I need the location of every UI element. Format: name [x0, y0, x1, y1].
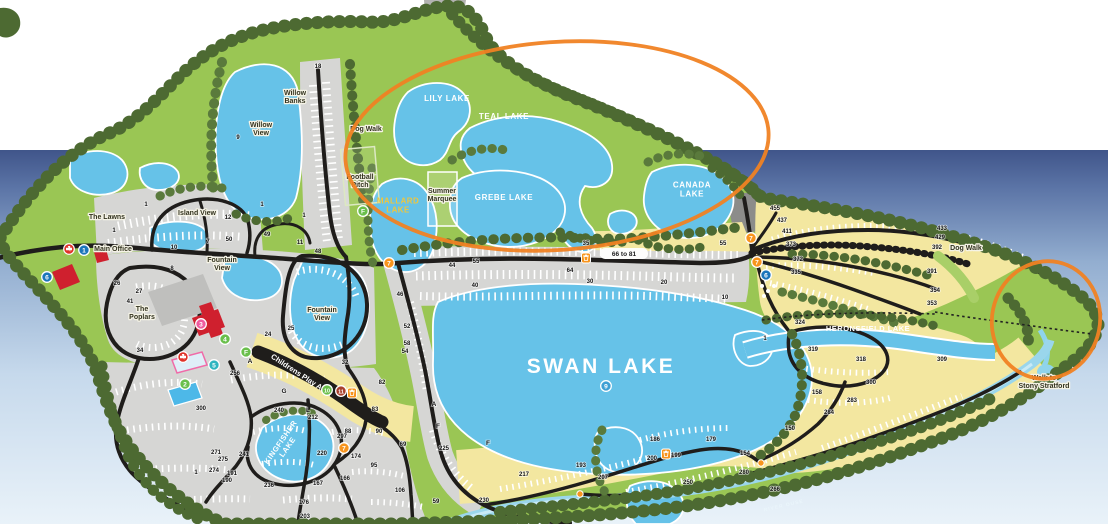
svg-text:7: 7	[749, 235, 753, 242]
site-number: 20	[661, 280, 668, 286]
svg-text:4: 4	[223, 336, 227, 343]
refuse-point-icon	[662, 449, 671, 459]
site-number: 280	[739, 470, 750, 476]
svg-text:6: 6	[764, 272, 768, 279]
row-letter: F	[436, 423, 440, 430]
site-number: 429	[935, 235, 946, 241]
marker-7-icon: 7	[746, 233, 757, 244]
marker-dot-icon	[758, 460, 764, 466]
site-number: 283	[847, 398, 858, 404]
site-number: 82	[379, 380, 386, 386]
site-number: 240	[274, 408, 285, 414]
site-number: 190	[222, 478, 233, 484]
marker-6-icon: 6	[42, 272, 53, 283]
site-number: 335	[791, 270, 802, 276]
site-number: 203	[300, 514, 311, 520]
site-number: 373	[786, 242, 797, 248]
map-label: GREBE LAKE	[475, 193, 534, 202]
site-number: 166	[340, 476, 351, 482]
row-letter: F	[486, 440, 490, 447]
svg-text:5: 5	[212, 362, 216, 369]
site-number: 32	[342, 360, 349, 366]
site-number: 10	[722, 295, 729, 301]
site-number: 230	[479, 498, 490, 504]
site-number: 191	[227, 471, 238, 477]
site-number: 24	[265, 332, 272, 338]
map-label: 66 to 81	[612, 251, 637, 258]
site-number: 158	[812, 390, 823, 396]
site-number: 167	[313, 481, 324, 487]
site-number: 18	[315, 64, 322, 70]
site-number: 179	[706, 437, 717, 443]
marker-11-icon: 11	[336, 386, 347, 397]
park-map: LILY LAKETEAL LAKEGREBE LAKECANADALAKEMA…	[0, 0, 1108, 524]
site-number: 309	[937, 357, 948, 363]
stone	[760, 284, 764, 288]
site-number: 50	[226, 237, 233, 243]
svg-text:3: 3	[199, 321, 203, 328]
site-number: 52	[404, 324, 411, 330]
site-number: 391	[927, 269, 938, 275]
svg-text:7: 7	[755, 259, 759, 266]
site-number: 27	[136, 289, 143, 295]
svg-text:2: 2	[183, 381, 187, 388]
row-letter: G	[281, 388, 286, 395]
site-number: 46	[397, 292, 404, 298]
first-aid-icon	[64, 244, 75, 255]
marker-9-icon: 9	[601, 381, 612, 392]
first-aid-icon	[178, 352, 189, 363]
svg-text:F: F	[244, 349, 248, 356]
stone	[762, 294, 766, 298]
site-number: 83	[372, 407, 379, 413]
site-number: 318	[856, 357, 867, 363]
park-map-canvas: LILY LAKETEAL LAKEGREBE LAKECANADALAKEMA…	[0, 0, 1108, 524]
site-number: 40	[472, 283, 479, 289]
site-number: 217	[519, 472, 530, 478]
site-number: 256	[230, 371, 241, 377]
site-number: 455	[770, 206, 781, 212]
marker-2-icon: 2	[180, 379, 191, 390]
marker-7-icon: 7	[752, 257, 763, 268]
marker-7-icon: 7	[339, 443, 350, 454]
svg-text:1: 1	[82, 247, 86, 254]
site-number: 275	[218, 457, 229, 463]
site-number: 55	[473, 259, 480, 265]
site-number: 319	[808, 347, 819, 353]
site-number: 392	[932, 245, 943, 251]
marker-dot-icon	[577, 491, 583, 497]
marker-10-icon: 10	[322, 385, 333, 396]
site-number: 26	[114, 281, 121, 287]
site-number: 300	[196, 406, 207, 412]
site-number: 274	[209, 468, 220, 474]
site-number: 266	[770, 487, 781, 493]
site-number: 220	[317, 451, 328, 457]
svg-text:6: 6	[45, 274, 49, 281]
refuse-point-icon	[348, 388, 357, 398]
site-number: 58	[404, 341, 411, 347]
map-label: Island View	[178, 210, 217, 217]
site-number: 284	[824, 410, 835, 416]
marker-6-icon: 6	[761, 270, 772, 281]
pond-west-2	[140, 163, 179, 190]
site-number: 95	[371, 463, 378, 469]
site-number: 25	[288, 326, 295, 332]
map-label: TEAL LAKE	[479, 112, 529, 121]
site-number: 433	[937, 226, 948, 232]
site-number: 49	[264, 232, 271, 238]
site-number: 64	[567, 268, 574, 274]
svg-text:9: 9	[604, 383, 608, 390]
map-label: Main Office	[94, 246, 132, 253]
marker-F-icon: F	[358, 206, 369, 217]
site-number: 236	[264, 483, 275, 489]
site-number: 300	[866, 380, 877, 386]
site-number: 150	[785, 426, 796, 432]
site-number: 30	[587, 279, 594, 285]
site-number: 69	[400, 442, 407, 448]
site-number: 271	[211, 450, 222, 456]
site-number: 10	[171, 245, 178, 251]
marker-5-icon: 5	[209, 360, 220, 371]
site-number: 174	[351, 454, 362, 460]
map-label: WillowBanks	[284, 90, 307, 105]
stone	[772, 284, 776, 288]
site-number: 186	[650, 437, 661, 443]
marker-7-icon: 7	[384, 258, 395, 269]
site-number: 372	[793, 257, 804, 263]
row-letter: A	[248, 358, 253, 365]
marker-F-icon: F	[241, 347, 252, 358]
site-number: 11	[297, 240, 304, 246]
map-label: SummerMarquee	[428, 188, 457, 203]
site-number: 193	[576, 463, 587, 469]
site-number: 176	[299, 500, 310, 506]
site-number: 411	[782, 229, 792, 235]
row-letter: L	[306, 407, 310, 414]
pond-west-1	[70, 151, 127, 195]
site-number: 200	[647, 456, 658, 462]
map-label: HERONSFIELD LAKE	[826, 324, 910, 333]
svg-text:7: 7	[342, 445, 346, 452]
map-label: SWAN LAKE	[527, 355, 676, 378]
svg-text:F: F	[361, 208, 365, 215]
site-number: 54	[402, 349, 409, 355]
map-label: Dog Walk	[950, 245, 982, 252]
site-number: 225	[439, 446, 450, 452]
site-number: 354	[930, 288, 941, 294]
site-number: 154	[740, 451, 751, 457]
site-number: 41	[127, 299, 134, 305]
site-number: 297	[337, 434, 348, 440]
svg-text:10: 10	[324, 388, 330, 394]
lake-willow	[216, 64, 302, 219]
marker-4-icon: 4	[220, 334, 231, 345]
site-number: 250	[683, 480, 694, 486]
svg-text:7: 7	[387, 260, 391, 267]
map-label: The Lawns	[89, 214, 125, 221]
site-number: 207	[598, 475, 609, 481]
marker-1-icon: 1	[79, 245, 90, 256]
site-number: 353	[927, 301, 938, 307]
site-number: 55	[720, 241, 727, 247]
site-number: 106	[395, 488, 406, 494]
site-number: 34	[137, 348, 144, 354]
site-number: 324	[795, 320, 806, 326]
site-number: 44	[449, 263, 456, 269]
refuse-point-icon	[582, 253, 591, 263]
site-number: 212	[308, 415, 319, 421]
site-number: 48	[315, 249, 322, 255]
svg-text:11: 11	[338, 389, 344, 395]
row-letter: A	[432, 401, 437, 408]
site-number: 12	[225, 215, 232, 221]
map-label: LILY LAKE	[424, 94, 470, 103]
site-number: 59	[433, 499, 440, 505]
stone	[766, 289, 770, 293]
site-number: 437	[777, 218, 788, 224]
site-number: 90	[376, 429, 383, 435]
pond-canada-small	[608, 211, 637, 234]
site-number: 199	[671, 453, 682, 459]
site-number: 241	[239, 452, 250, 458]
marker-3-icon: 3	[196, 319, 207, 330]
